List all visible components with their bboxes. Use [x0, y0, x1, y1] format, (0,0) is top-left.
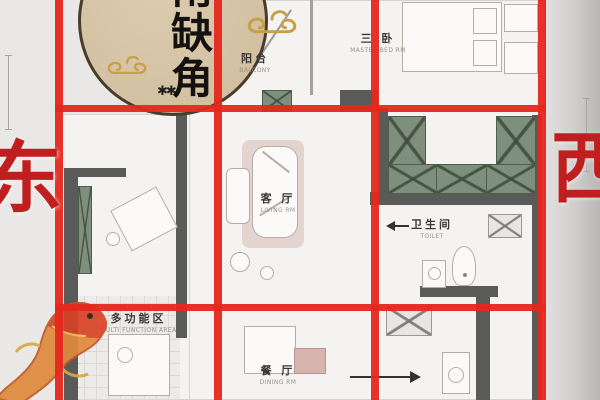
closet-cabinet-left: [388, 116, 426, 166]
chair-detail-line: [262, 151, 290, 174]
note-char-corner: 角: [167, 56, 217, 101]
closet-cabinet-bottom-3: [486, 164, 536, 194]
dimension-tick: [5, 55, 12, 56]
arrow-shaft: [350, 376, 410, 378]
toilet-name-zh: 卫生间: [402, 216, 462, 232]
compass-west: 西: [551, 130, 600, 208]
nightstand: [504, 4, 538, 32]
dimension-tick: [5, 129, 12, 130]
washing-machine: [442, 352, 470, 394]
living-room-name-zh: 客 厅: [248, 190, 308, 206]
arrow-right-icon: [410, 371, 421, 383]
bathroom-sink: [422, 260, 446, 288]
note-char-missing: 缺: [167, 11, 217, 56]
toilet-name-en: TOILET: [402, 233, 462, 240]
balcony-name-zh: 阳台: [225, 50, 285, 66]
compass-east: 东: [0, 140, 62, 218]
grid-line-horizontal-1: [55, 105, 546, 112]
dimension-line-left: [8, 55, 9, 130]
stool-round: [260, 266, 274, 280]
missing-corner-note: 南 缺 角: [167, 0, 217, 101]
armchair: [226, 168, 250, 224]
nightstand: [504, 42, 538, 74]
toilet-flush-dot: [463, 273, 467, 277]
grid-line-vertical-4: [538, 0, 546, 400]
auspicious-cloud-icon: [243, 4, 301, 42]
coffee-table-round: [230, 252, 250, 272]
closet-cabinet-bottom-2: [436, 164, 488, 194]
sink-basin: [428, 267, 441, 280]
wall-entry-light: [310, 0, 313, 95]
label-toilet: 卫生间 TOILET: [402, 216, 462, 240]
balcony-name-en: BALCONY: [225, 67, 285, 74]
fengshui-floorplan: 南 缺 角 ✱✱ 阳台 BALCONY 三 卧 MASTER BED RM 客 …: [0, 0, 600, 400]
living-room-name-en: LIVING RM: [248, 207, 308, 214]
grid-line-vertical-3: [371, 0, 379, 400]
dining-room-name-en: DINING RM: [248, 379, 308, 386]
auspicious-cloud-icon: [104, 50, 150, 82]
pillow: [473, 8, 497, 34]
wall-laundry-divider: [476, 297, 490, 400]
wardrobe-left-bedroom: [78, 186, 92, 274]
label-dining-room: 餐 厅 DINING RM: [248, 362, 308, 386]
label-living-room: 客 厅 LIVING RM: [248, 190, 308, 214]
grid-line-vertical-2: [214, 0, 222, 400]
wall-closet-left: [378, 108, 388, 196]
dining-room-name-zh: 餐 厅: [248, 362, 308, 378]
closet-cabinet-right: [496, 116, 536, 166]
pillow: [473, 40, 497, 66]
side-table-round: [106, 232, 120, 246]
closet-cabinet-bottom-1: [388, 164, 438, 194]
toilet-fixture: [452, 246, 476, 286]
bed-master: [402, 2, 502, 72]
flow-pointer: [350, 370, 422, 384]
wall-left-bedroom-top: [64, 168, 126, 177]
label-balcony: 阳台 BALCONY: [225, 50, 285, 74]
grid-line-horizontal-2: [55, 304, 546, 311]
washer-drum: [448, 367, 464, 383]
vanity-stool: [488, 214, 522, 238]
dimension-tick: [583, 98, 590, 99]
